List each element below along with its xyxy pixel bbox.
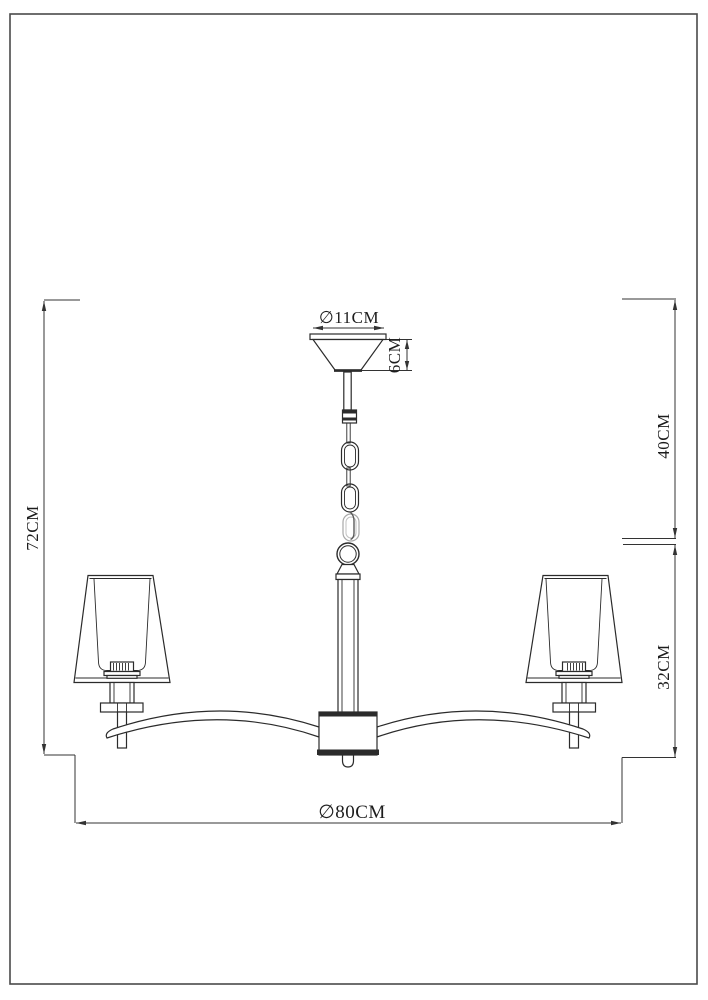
loop-ring	[336, 543, 360, 580]
hanging-rod	[344, 372, 351, 410]
finial	[343, 755, 354, 767]
canopy	[310, 334, 386, 371]
chain	[342, 423, 360, 541]
right-arm	[377, 711, 590, 738]
chain-connector	[343, 410, 357, 423]
body-height-label: 32CM	[654, 644, 673, 689]
chain-spare-link	[343, 512, 359, 541]
dim-body-height: 32CM	[622, 545, 677, 824]
hook-icon	[350, 512, 354, 540]
canopy-diameter-label: ∅11CM	[319, 308, 379, 327]
dim-suspension-length: 40CM	[622, 299, 677, 539]
dim-canopy-diameter: ∅11CM	[313, 308, 384, 330]
center-column	[338, 580, 358, 713]
drawing-page: 72CM 40CM 32CM ∅80CM ∅11CM	[0, 0, 708, 1000]
left-arm	[106, 711, 319, 738]
candle-sleeve	[110, 683, 134, 704]
suspension-length-label: 40CM	[654, 413, 673, 458]
dim-overall-height: 72CM	[23, 300, 80, 823]
dim-overall-diameter: ∅80CM	[76, 802, 621, 825]
center-hub	[317, 712, 379, 755]
overall-height-label: 72CM	[23, 505, 42, 550]
canopy-height-label: 6CM	[385, 337, 404, 373]
overall-diameter-label: ∅80CM	[318, 802, 386, 823]
border-frame	[10, 14, 697, 984]
chandelier-dimension-diagram: 72CM 40CM 32CM ∅80CM ∅11CM	[0, 0, 708, 1000]
bobeche	[101, 703, 144, 712]
